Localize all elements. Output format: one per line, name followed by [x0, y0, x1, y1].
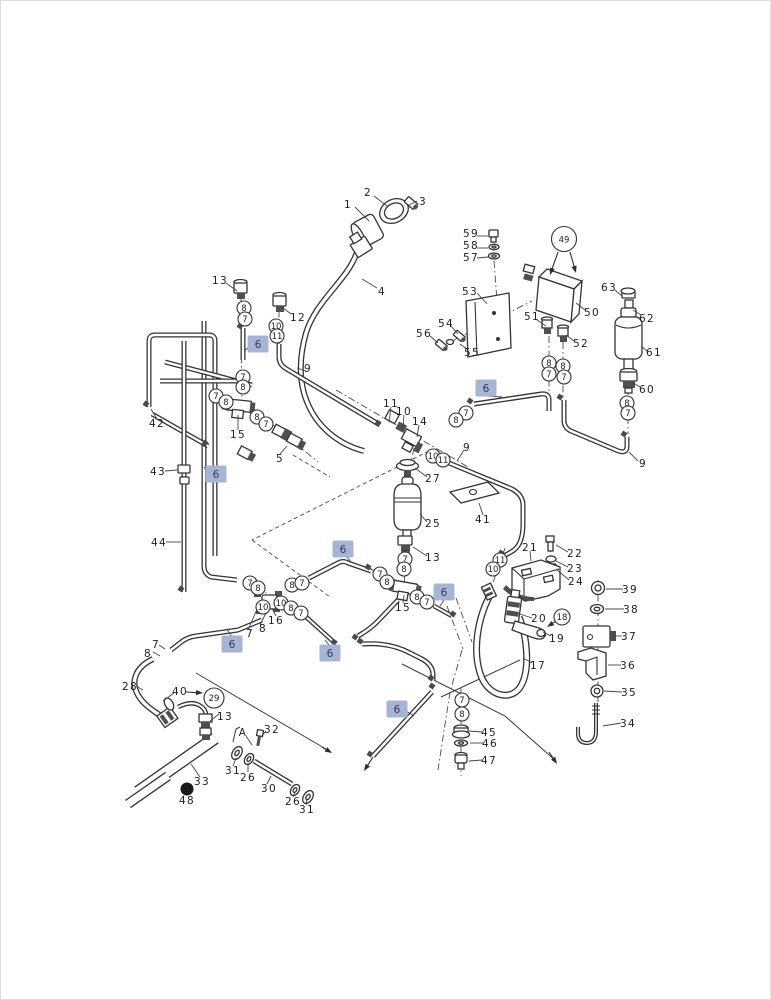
part-label-38: 38: [623, 604, 639, 616]
part-label-52: 52: [573, 338, 589, 350]
part-label-48: 48: [179, 795, 195, 807]
part-label-8: 8: [144, 648, 152, 660]
part-label-7: 7: [246, 628, 254, 640]
tube-end-cap: [621, 431, 628, 438]
leader-line: [362, 279, 377, 288]
part-label-55: 55: [464, 347, 480, 359]
balloon-label: 10: [488, 565, 499, 575]
part-label-26: 26: [240, 772, 256, 784]
tube-end-cap: [429, 683, 436, 690]
balloon-label: 7: [561, 373, 566, 383]
arrow-head: [196, 690, 203, 695]
part-label-9: 9: [463, 442, 471, 454]
part-label-51: 51: [524, 311, 540, 323]
part-label-54: 54: [438, 318, 454, 330]
part-label-50: 50: [584, 307, 600, 319]
leader-line: [604, 691, 622, 692]
leader-line: [153, 652, 160, 656]
pin-32: [255, 730, 264, 747]
balloon-label: 11: [438, 456, 449, 466]
part-label-12: 12: [290, 312, 306, 324]
bracket-41: [450, 482, 499, 503]
part-label-46: 46: [482, 738, 498, 750]
washer-38: [591, 605, 604, 614]
accumulator-25: [394, 477, 421, 537]
part-label-63: 63: [601, 282, 617, 294]
washers-31-26-left: [229, 745, 255, 767]
balloon-label: 8: [289, 581, 294, 591]
highlighted-part-label[interactable]: 6: [340, 544, 347, 556]
hose-17-fitting: [481, 583, 496, 600]
part-label-15: 15: [230, 429, 246, 441]
balloon-label: 10: [258, 603, 269, 613]
part-label-53: 53: [462, 286, 478, 298]
stack-57-58-59: [489, 230, 500, 259]
part-label-21: 21: [522, 542, 538, 554]
balloon-label: 49: [559, 236, 570, 246]
screws-54-55-56: [435, 330, 467, 352]
part-label-13: 13: [217, 711, 233, 723]
part-label-14: 14: [412, 416, 428, 428]
balloon-label: 7: [242, 315, 247, 325]
coupler-5: [271, 423, 308, 450]
fitting-51: [542, 317, 553, 334]
part-label-36: 36: [620, 660, 636, 672]
parts-diagram-page: 4929188710117878877810118787877878877887…: [0, 0, 771, 1000]
leader-line: [603, 723, 621, 726]
tube-end-cap: [367, 751, 374, 758]
balloon-label: 7: [546, 370, 551, 380]
part-label-31: 31: [299, 804, 315, 816]
arrow-line: [551, 252, 558, 271]
part-label-30: 30: [261, 783, 277, 795]
balloon-label: 7: [424, 598, 429, 608]
part-label-40: 40: [172, 686, 188, 698]
part-label-32: 32: [264, 724, 280, 736]
balloon-label: 8: [414, 593, 419, 603]
part-label-37: 37: [621, 631, 637, 643]
part-label-17: 17: [530, 660, 546, 672]
plug-48: [181, 783, 194, 796]
balloon-label: 8: [384, 578, 389, 588]
balloon-label: 8: [453, 416, 458, 426]
filter-61: [615, 288, 642, 393]
part-label-62: 62: [639, 313, 655, 325]
part-label-31: 31: [225, 765, 241, 777]
leader-line: [440, 600, 444, 606]
part-label-9: 9: [304, 363, 312, 375]
part-label-3: 3: [419, 196, 427, 208]
tube-end-cap: [467, 398, 474, 405]
part-label-1: 1: [344, 199, 352, 211]
part-label-24: 24: [568, 576, 584, 588]
exploded-parts-diagram: 4929188710117878877810118787877878877887…: [0, 0, 771, 1000]
part-label-59: 59: [463, 228, 479, 240]
balloon-label: 8: [459, 710, 464, 720]
part-label-8: 8: [259, 623, 267, 635]
fitting-52: [558, 325, 569, 342]
nut-35: [591, 685, 603, 697]
part-label-60: 60: [639, 384, 655, 396]
highlighted-part-label[interactable]: 6: [327, 648, 334, 660]
part-label-41: 41: [475, 514, 491, 526]
highlighted-part-label[interactable]: 6: [213, 469, 220, 481]
balloon-label: 8: [401, 565, 406, 575]
part-label-19: 19: [549, 633, 565, 645]
part-label-39: 39: [622, 584, 638, 596]
part-label-43: 43: [150, 466, 166, 478]
part-label-33: 33: [194, 776, 210, 788]
nut-39: [592, 582, 605, 595]
part-label-42: 42: [149, 418, 165, 430]
balloon-label: 8: [288, 604, 293, 614]
part-label-7: 7: [152, 639, 160, 651]
bracket-36: [578, 648, 606, 680]
balloon-label: 7: [459, 696, 464, 706]
balloon-label: 8: [223, 398, 228, 408]
leader-line: [629, 452, 638, 461]
balloon-label: 8: [255, 584, 260, 594]
part-label-44: 44: [151, 537, 167, 549]
part-label-13: 13: [425, 552, 441, 564]
part-label-25: 25: [425, 518, 441, 530]
tube-end-cap: [557, 394, 564, 401]
part-label-34: 34: [620, 718, 636, 730]
highlighted-part-label[interactable]: 6: [394, 704, 401, 716]
balloon-label: 7: [298, 609, 303, 619]
highlighted-part-label[interactable]: 6: [441, 587, 448, 599]
balloon-label: 8: [240, 383, 245, 393]
part-label-28: 28: [122, 681, 138, 693]
part-label-13: 13: [212, 275, 228, 287]
part-label-20: 20: [531, 613, 547, 625]
part-label-15: 15: [395, 602, 411, 614]
balloon-label: 7: [299, 579, 304, 589]
leader-line: [165, 470, 177, 471]
page-border: [1, 1, 771, 1000]
arrow-head: [547, 621, 554, 627]
part-label-4: 4: [378, 286, 386, 298]
highlighted-part-label[interactable]: 6: [255, 339, 262, 351]
leader-line: [374, 196, 387, 206]
balloon-label: 7: [625, 409, 630, 419]
part-label-23: 23: [567, 563, 583, 575]
part-label-56: 56: [416, 328, 432, 340]
part-label-A: A: [239, 727, 247, 739]
part-label-58: 58: [463, 240, 479, 252]
o-ring-40: [162, 696, 175, 711]
fitting-lower-42: [237, 446, 256, 462]
balloon-label: 7: [463, 409, 468, 419]
balloon-label: 11: [272, 332, 283, 342]
arrow-head: [364, 764, 370, 771]
part-label-10: 10: [396, 406, 412, 418]
switch-block-37: [583, 626, 616, 647]
part-label-16: 16: [268, 615, 284, 627]
part-label-35: 35: [621, 687, 637, 699]
part-label-61: 61: [646, 347, 662, 359]
part-label-5: 5: [276, 453, 284, 465]
part-label-57: 57: [463, 252, 479, 264]
part-label-22: 22: [567, 548, 583, 560]
hose-28-coupler: [157, 707, 178, 728]
highlighted-part-label[interactable]: 6: [229, 639, 236, 651]
balloon-label: 29: [209, 694, 220, 704]
highlighted-part-label[interactable]: 6: [483, 383, 490, 395]
balloon-label: 18: [557, 613, 568, 623]
balloon-label: 7: [263, 420, 268, 430]
balloon-label: 7: [213, 392, 218, 402]
part-label-47: 47: [481, 755, 497, 767]
fitting-13-top: [234, 280, 247, 300]
part-label-27: 27: [425, 473, 441, 485]
arrow-head: [325, 747, 332, 753]
part-label-2: 2: [364, 187, 372, 199]
arrow-head: [572, 266, 577, 273]
part-label-9: 9: [639, 458, 647, 470]
